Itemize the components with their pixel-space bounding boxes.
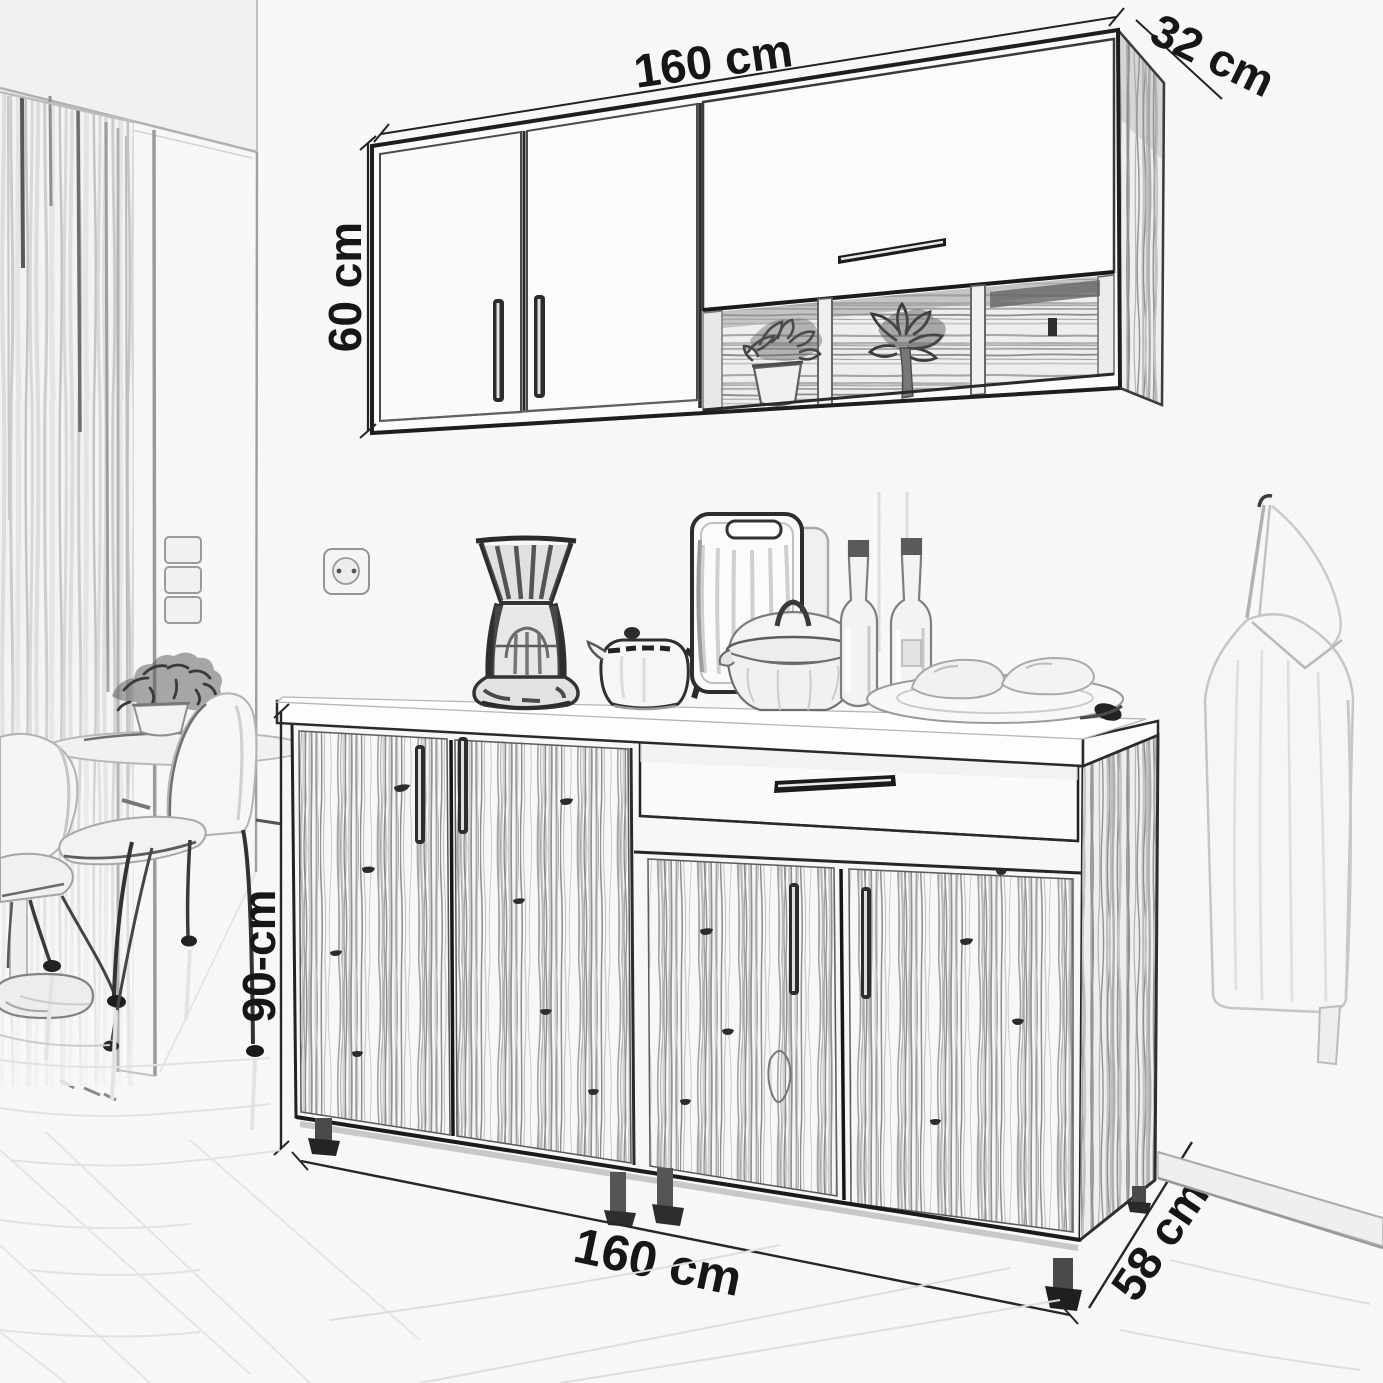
svg-text:60 cm: 60 cm	[319, 222, 371, 352]
svg-text:90-cm: 90-cm	[233, 890, 285, 1023]
